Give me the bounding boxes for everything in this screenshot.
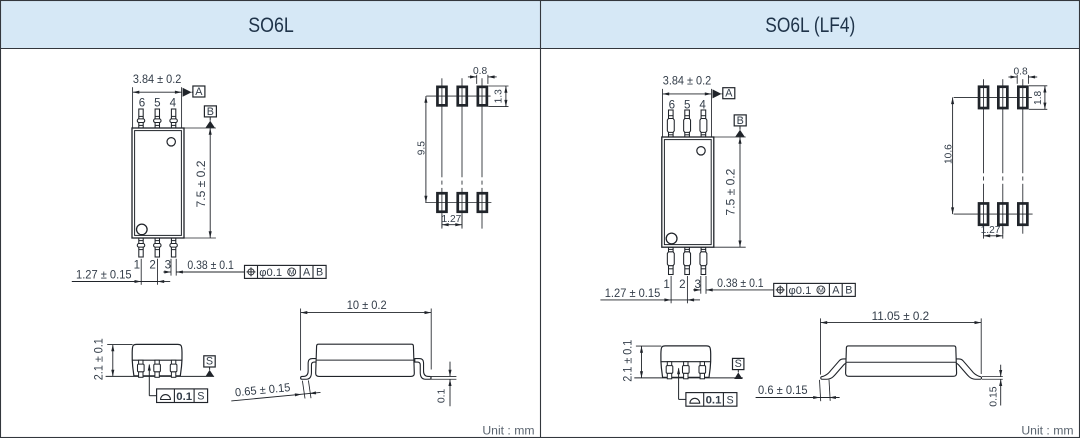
- svg-text:10 ± 0.2: 10 ± 0.2: [347, 299, 387, 312]
- svg-text:S: S: [735, 358, 742, 370]
- svg-text:SO6L: SO6L: [248, 13, 294, 37]
- svg-text:3: 3: [165, 258, 171, 271]
- svg-text:A: A: [832, 285, 840, 297]
- svg-text:2: 2: [679, 278, 685, 291]
- svg-text:A: A: [303, 267, 311, 279]
- svg-text:4: 4: [699, 98, 706, 111]
- svg-text:A: A: [195, 86, 203, 98]
- svg-text:B: B: [207, 106, 214, 118]
- svg-text:0.8: 0.8: [1014, 66, 1028, 77]
- svg-text:0.1: 0.1: [436, 388, 447, 403]
- svg-text:Unit : mm: Unit : mm: [1021, 423, 1073, 437]
- svg-text:0.38 ± 0.1: 0.38 ± 0.1: [187, 259, 234, 272]
- svg-text:A: A: [725, 88, 733, 100]
- svg-text:S: S: [206, 356, 213, 368]
- svg-text:1.27 ± 0.15: 1.27 ± 0.15: [605, 287, 661, 300]
- svg-text:11.05 ± 0.2: 11.05 ± 0.2: [872, 310, 930, 323]
- svg-text:6: 6: [139, 97, 145, 110]
- svg-text:1.3: 1.3: [493, 89, 504, 103]
- svg-text:1.27: 1.27: [981, 225, 1001, 236]
- svg-text:0.1: 0.1: [706, 395, 722, 407]
- svg-text:2: 2: [149, 258, 155, 271]
- svg-text:1.27 ± 0.15: 1.27 ± 0.15: [76, 269, 132, 282]
- svg-text:2.1 ± 0.1: 2.1 ± 0.1: [621, 340, 634, 382]
- svg-text:φ0.1: φ0.1: [259, 267, 282, 279]
- svg-text:7.5 ± 0.2: 7.5 ± 0.2: [725, 169, 738, 216]
- svg-text:10.6: 10.6: [943, 144, 954, 164]
- svg-text:1.27: 1.27: [441, 214, 461, 225]
- svg-text:0.8: 0.8: [473, 66, 487, 77]
- svg-text:9.5: 9.5: [416, 141, 427, 155]
- svg-text:0.38 ± 0.1: 0.38 ± 0.1: [717, 277, 764, 290]
- svg-text:1: 1: [663, 278, 669, 291]
- svg-text:3.84 ± 0.2: 3.84 ± 0.2: [133, 73, 182, 86]
- svg-text:B: B: [316, 267, 323, 279]
- svg-text:B: B: [737, 115, 744, 127]
- svg-text:6: 6: [669, 98, 675, 111]
- svg-text:φ0.1: φ0.1: [788, 285, 811, 297]
- svg-text:3.84 ± 0.2: 3.84 ± 0.2: [663, 75, 712, 88]
- svg-text:S: S: [197, 391, 204, 403]
- svg-text:2.1 ± 0.1: 2.1 ± 0.1: [93, 338, 106, 380]
- svg-text:1.8: 1.8: [1033, 90, 1044, 104]
- svg-text:M: M: [289, 270, 295, 277]
- svg-text:5: 5: [684, 98, 690, 111]
- svg-text:5: 5: [154, 97, 160, 110]
- svg-text:M: M: [818, 288, 824, 295]
- svg-text:4: 4: [170, 97, 177, 110]
- svg-text:0.15: 0.15: [988, 386, 999, 406]
- svg-text:B: B: [845, 285, 852, 297]
- svg-text:Unit : mm: Unit : mm: [482, 423, 534, 437]
- svg-text:7.5 ± 0.2: 7.5 ± 0.2: [195, 161, 208, 208]
- svg-text:SO6L (LF4): SO6L (LF4): [765, 13, 855, 37]
- svg-text:0.6 ± 0.15: 0.6 ± 0.15: [758, 384, 808, 397]
- svg-text:0.1: 0.1: [176, 391, 192, 403]
- svg-text:S: S: [726, 394, 733, 406]
- svg-text:1: 1: [134, 258, 140, 271]
